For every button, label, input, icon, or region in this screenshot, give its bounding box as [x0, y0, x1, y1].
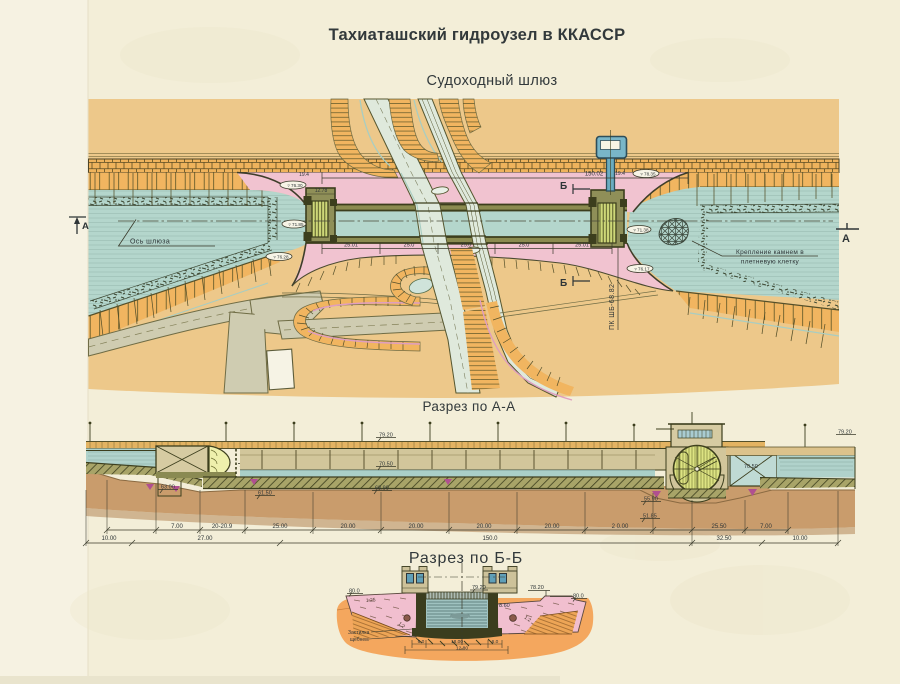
svg-text:78.20: 78.20 — [530, 585, 544, 591]
svg-text:▿ 71.38: ▿ 71.38 — [633, 228, 649, 233]
svg-text:20-20.9: 20-20.9 — [212, 524, 233, 530]
svg-text:25.00: 25.00 — [272, 524, 288, 530]
svg-text:25.50: 25.50 — [711, 524, 727, 530]
svg-text:7.00: 7.00 — [760, 524, 772, 530]
svg-text:щебнем: щебнем — [350, 637, 369, 643]
svg-text:Разрез по Б-Б: Разрез по Б-Б — [409, 550, 523, 567]
svg-text:70.50: 70.50 — [379, 462, 393, 468]
svg-text:19.4: 19.4 — [299, 172, 309, 178]
svg-text:А: А — [82, 221, 89, 232]
svg-text:25.0: 25.0 — [461, 243, 472, 249]
svg-text:25.01: 25.01 — [575, 243, 589, 249]
svg-text:Ось шлюза: Ось шлюза — [130, 239, 170, 246]
svg-text:80.0: 80.0 — [573, 594, 584, 600]
svg-text:20.00: 20.00 — [340, 524, 356, 530]
svg-text:25.0: 25.0 — [404, 243, 415, 249]
svg-text:Разрез по А-А: Разрез по А-А — [422, 399, 515, 414]
svg-text:79.20: 79.20 — [379, 433, 393, 439]
svg-text:▿ 78.35: ▿ 78.35 — [640, 172, 656, 177]
svg-text:18.00: 18.00 — [451, 639, 463, 645]
svg-text:10.00: 10.00 — [792, 536, 808, 542]
svg-text:51.85: 51.85 — [643, 514, 657, 520]
svg-text:Б: Б — [560, 181, 567, 192]
svg-text:Судоходный шлюз: Судоходный шлюз — [426, 73, 557, 89]
svg-text:10.00: 10.00 — [101, 536, 117, 542]
svg-text:ПК ШБ-68.82: ПК ШБ-68.82 — [609, 284, 616, 330]
svg-text:150.0: 150.0 — [482, 536, 498, 542]
svg-text:19.4: 19.4 — [615, 171, 625, 177]
svg-text:6.0: 6.0 — [418, 639, 425, 645]
svg-text:▿ 76.28: ▿ 76.28 — [273, 255, 289, 260]
svg-text:А: А — [842, 233, 850, 245]
svg-text:1:25: 1:25 — [366, 597, 376, 604]
svg-text:27.00: 27.00 — [197, 536, 213, 542]
svg-text:Б: Б — [560, 278, 567, 289]
svg-text:7.00: 7.00 — [171, 524, 183, 530]
svg-text:20.00: 20.00 — [476, 524, 492, 530]
svg-text:68.90: 68.90 — [375, 486, 389, 492]
svg-text:20.00: 20.00 — [408, 524, 424, 530]
svg-text:79.20: 79.20 — [472, 585, 486, 591]
svg-text:25.01: 25.01 — [344, 243, 358, 249]
svg-text:70.50: 70.50 — [744, 464, 758, 470]
svg-text:▿ 71.85: ▿ 71.85 — [288, 222, 304, 227]
svg-text:12.78: 12.78 — [315, 188, 328, 194]
svg-text:12.80: 12.80 — [456, 646, 468, 652]
svg-text:55.90: 55.90 — [644, 497, 658, 503]
svg-text:плетневую клетку: плетневую клетку — [741, 259, 800, 266]
svg-text:32.50: 32.50 — [716, 536, 732, 542]
svg-text:25.0: 25.0 — [519, 243, 530, 249]
svg-text:6.0: 6.0 — [492, 639, 499, 645]
svg-text:63.00: 63.00 — [161, 485, 175, 491]
svg-text:61.50: 61.50 — [258, 491, 272, 497]
svg-text:Крепление камнем в: Крепление камнем в — [736, 249, 804, 256]
svg-text:▿ 76.30: ▿ 76.30 — [287, 183, 303, 188]
svg-text:150.02: 150.02 — [585, 172, 604, 178]
svg-text:8.60: 8.60 — [499, 603, 510, 609]
svg-text:2 0.00: 2 0.00 — [612, 524, 629, 530]
svg-text:▿ 76.17: ▿ 76.17 — [634, 267, 650, 272]
svg-text:Тахиаташский гидроузел в ККАС: Тахиаташский гидроузел в ККАССР — [329, 26, 626, 44]
svg-text:79.20: 79.20 — [838, 430, 852, 436]
svg-text:80.0: 80.0 — [349, 589, 360, 595]
svg-text:Застилка: Застилка — [348, 630, 370, 636]
svg-text:20.00: 20.00 — [544, 524, 560, 530]
